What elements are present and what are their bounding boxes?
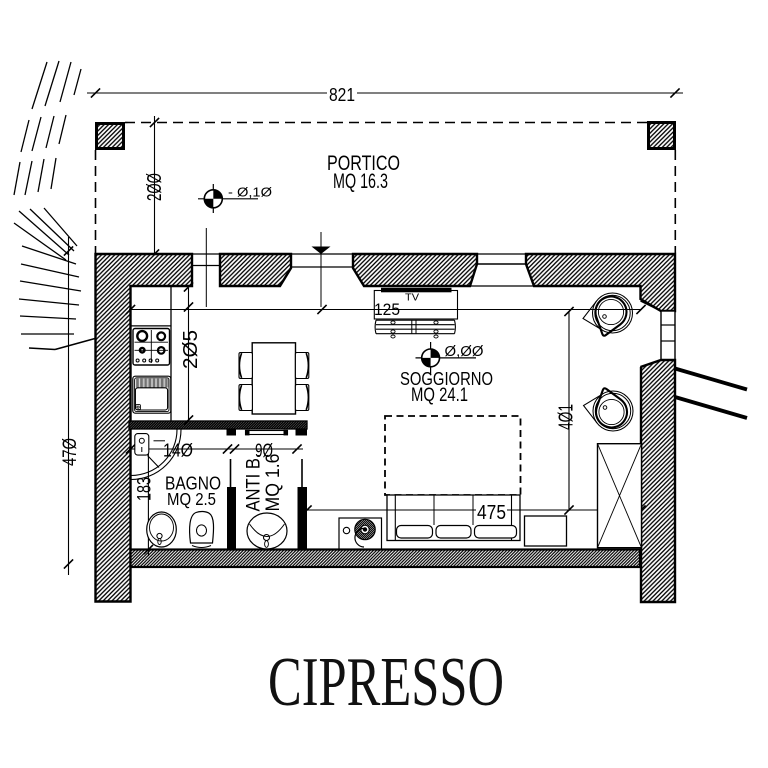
- svg-text:475: 475: [477, 502, 506, 524]
- svg-text:2Ø5: 2Ø5: [180, 330, 202, 369]
- svg-text:4Ø1: 4Ø1: [556, 404, 578, 430]
- svg-text:CIPRESSO: CIPRESSO: [268, 644, 504, 721]
- svg-text:TV: TV: [405, 292, 419, 304]
- svg-text:MQ 1.6: MQ 1.6: [263, 454, 284, 512]
- svg-text:821: 821: [329, 85, 355, 105]
- svg-text:183: 183: [135, 477, 156, 501]
- svg-text:- Ø,1Ø: - Ø,1Ø: [228, 185, 272, 200]
- svg-text:ANTI B.: ANTI B.: [244, 454, 265, 512]
- svg-text:MQ 24.1: MQ 24.1: [411, 385, 468, 406]
- svg-text:MQ 16.3: MQ 16.3: [333, 170, 388, 193]
- svg-text:Ø,ØØ: Ø,ØØ: [445, 344, 484, 360]
- svg-text:MQ 2.5: MQ 2.5: [167, 489, 216, 509]
- svg-text:47Ø: 47Ø: [60, 438, 81, 466]
- svg-text:125: 125: [374, 300, 400, 319]
- svg-text:2ØØ: 2ØØ: [144, 173, 166, 201]
